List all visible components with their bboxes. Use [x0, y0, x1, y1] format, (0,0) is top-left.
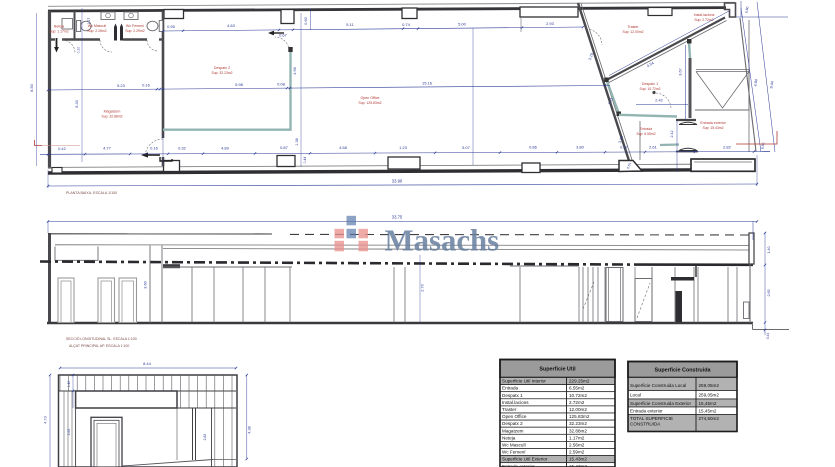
svg-text:Magatzem: Magatzem [104, 110, 121, 114]
svg-text:Superficie Util Exterior: Superficie Util Exterior [502, 457, 548, 462]
svg-text:Open Office: Open Office [502, 414, 527, 419]
svg-text:0.44: 0.44 [303, 157, 307, 164]
svg-text:2.70: 2.70 [421, 284, 425, 291]
svg-text:2.61: 2.61 [649, 145, 658, 150]
svg-text:0.08: 0.08 [277, 82, 286, 87]
svg-text:0.74: 0.74 [402, 22, 411, 27]
svg-text:Open Office: Open Office [360, 96, 379, 100]
svg-text:Masachs: Masachs [385, 223, 500, 257]
svg-text:2.93: 2.93 [546, 21, 555, 26]
svg-text:Traster: Traster [627, 25, 639, 29]
svg-text:Wc Femení: Wc Femení [502, 450, 526, 455]
svg-text:259,05m2: 259,05m2 [699, 393, 720, 398]
svg-text:0.32: 0.32 [178, 145, 187, 150]
svg-text:0.87: 0.87 [280, 145, 289, 150]
svg-text:5.11: 5.11 [346, 22, 354, 27]
svg-text:33.75: 33.75 [392, 215, 403, 220]
svg-text:4.38: 4.38 [248, 426, 252, 433]
svg-text:Sup: 2.28m2: Sup: 2.28m2 [87, 29, 106, 33]
svg-text:5.23: 5.23 [117, 83, 126, 88]
svg-text:0.87: 0.87 [620, 145, 629, 150]
svg-text:15.43m2: 15.43m2 [569, 457, 587, 462]
svg-text:2.82: 2.82 [203, 434, 207, 441]
svg-text:3.67: 3.67 [679, 68, 683, 75]
svg-text:0.44: 0.44 [766, 333, 770, 340]
svg-text:0.80: 0.80 [761, 142, 766, 149]
svg-text:TOTAL SUPERFICIE: TOTAL SUPERFICIE [630, 416, 673, 421]
svg-text:Neteja: Neteja [502, 435, 516, 440]
svg-text:1.23: 1.23 [399, 145, 408, 150]
svg-text:15,45m2: 15,45m2 [699, 401, 717, 406]
svg-text:Sup: 32.88m2: Sup: 32.88m2 [101, 115, 122, 119]
svg-text:6.33: 6.33 [75, 100, 79, 107]
svg-text:Sup: 15.43m2: Sup: 15.43m2 [702, 126, 723, 130]
svg-text:Superficie Construida Local: Superficie Construida Local [630, 383, 686, 388]
svg-text:274,50m2: 274,50m2 [699, 416, 720, 421]
svg-text:32.23m2: 32.23m2 [569, 421, 587, 426]
svg-text:4.94: 4.94 [754, 79, 759, 87]
svg-text:0.16: 0.16 [142, 83, 151, 88]
svg-text:2.59m2: 2.59m2 [569, 450, 585, 455]
svg-text:1.40: 1.40 [67, 381, 71, 388]
svg-text:9.44: 9.44 [770, 81, 775, 89]
svg-text:0.42: 0.42 [58, 146, 67, 151]
svg-text:10.72m2: 10.72m2 [569, 393, 587, 398]
svg-text:Local: Local [630, 393, 641, 398]
svg-text:2.56m2: 2.56m2 [569, 443, 585, 448]
svg-text:Superficie Util Interior: Superficie Util Interior [502, 379, 546, 384]
svg-text:Neteja: Neteja [54, 25, 64, 29]
svg-text:Entrada exterior: Entrada exterior [630, 408, 663, 413]
svg-text:Entrada: Entrada [502, 386, 519, 391]
svg-text:0.95: 0.95 [167, 24, 176, 29]
svg-text:Sup: 125.83m2: Sup: 125.83m2 [359, 101, 382, 105]
svg-text:Traster: Traster [502, 407, 517, 412]
svg-text:2.82: 2.82 [723, 145, 732, 150]
svg-text:5.07: 5.07 [462, 145, 471, 150]
svg-text:1.17m2: 1.17m2 [569, 435, 585, 440]
svg-text:0.67: 0.67 [279, 33, 288, 38]
svg-text:0.10: 0.10 [77, 47, 81, 54]
svg-text:1.40: 1.40 [767, 247, 771, 254]
svg-text:8.44: 8.44 [143, 361, 152, 366]
svg-text:Sup: 1.17m2: Sup: 1.17m2 [49, 30, 68, 34]
svg-text:Despatx 1: Despatx 1 [502, 393, 523, 398]
svg-text:0.16: 0.16 [150, 146, 159, 151]
svg-text:Instal.lacions: Instal.lacions [502, 400, 529, 405]
svg-text:2.42: 2.42 [655, 99, 662, 103]
svg-text:4.89: 4.89 [221, 145, 230, 150]
svg-text:15.16: 15.16 [422, 80, 433, 85]
svg-text:8.50: 8.50 [30, 84, 34, 91]
svg-text:3.19: 3.19 [588, 53, 594, 61]
svg-text:1.27: 1.27 [87, 18, 91, 25]
svg-text:Despatx 1: Despatx 1 [642, 82, 658, 86]
svg-text:Wc Masculí: Wc Masculí [502, 443, 526, 448]
svg-text:2.65: 2.65 [767, 290, 771, 297]
svg-text:259,05m2: 259,05m2 [699, 383, 720, 388]
svg-text:Magatzem: Magatzem [502, 428, 524, 433]
svg-text:Sup: 10.72m2: Sup: 10.72m2 [639, 87, 660, 91]
svg-text:125.83m2: 125.83m2 [569, 414, 590, 419]
svg-text:Superficie Util: Superficie Util [539, 367, 576, 373]
svg-text:Superficie Construida Exterior: Superficie Construida Exterior [630, 401, 691, 406]
svg-text:4.96: 4.96 [293, 67, 297, 74]
svg-text:CONSTRUIDA: CONSTRUIDA [630, 422, 661, 427]
svg-text:2.72m2: 2.72m2 [569, 400, 585, 405]
svg-text:2.65: 2.65 [67, 429, 71, 436]
svg-text:0.86: 0.86 [529, 145, 538, 150]
svg-text:1.38: 1.38 [295, 138, 299, 145]
svg-text:5.00: 5.00 [458, 21, 467, 26]
svg-text:Entrada: Entrada [640, 127, 653, 131]
svg-text:Despatx 2: Despatx 2 [502, 421, 523, 426]
svg-text:Entrada exterior: Entrada exterior [700, 121, 726, 125]
svg-text:32.88m2: 32.88m2 [569, 428, 587, 433]
svg-text:33.90: 33.90 [392, 179, 403, 184]
svg-text:Sup: 12.00m2: Sup: 12.00m2 [622, 30, 643, 34]
svg-text:3.80: 3.80 [576, 145, 585, 150]
svg-text:4.63: 4.63 [227, 23, 236, 28]
svg-text:SECCIÓ LONGITUDINAL SL. ESCALA: SECCIÓ LONGITUDINAL SL. ESCALA 1:100 [66, 336, 137, 341]
svg-text:Superficie Construida: Superficie Construida [654, 368, 711, 374]
svg-text:229.25m2: 229.25m2 [569, 379, 590, 384]
svg-text:0.60: 0.60 [304, 17, 308, 24]
svg-text:Sup: 2.72m2: Sup: 2.72m2 [694, 18, 713, 22]
svg-text:3.60: 3.60 [144, 281, 148, 288]
svg-text:15,45m2: 15,45m2 [699, 408, 717, 413]
svg-text:ALÇAT PRINCIPAL AP. ESCALA 1:1: ALÇAT PRINCIPAL AP. ESCALA 1:100 [69, 344, 129, 348]
svg-text:Wc Femení: Wc Femení [126, 24, 144, 28]
svg-text:4.58: 4.58 [339, 145, 348, 150]
svg-text:Sup: 2.29m2: Sup: 2.29m2 [125, 29, 144, 33]
svg-text:PLANTA BAIXA. ESCALA 1/100: PLANTA BAIXA. ESCALA 1/100 [66, 191, 117, 195]
svg-text:Instal.lacions: Instal.lacions [694, 13, 715, 17]
svg-text:12.00m2: 12.00m2 [569, 407, 587, 412]
svg-text:Sup: 6.55m2: Sup: 6.55m2 [636, 132, 655, 136]
svg-text:2.42: 2.42 [670, 131, 674, 138]
svg-text:5.98: 5.98 [235, 82, 244, 87]
svg-text:Despatx 2: Despatx 2 [214, 66, 230, 70]
svg-text:4.77: 4.77 [103, 146, 112, 151]
svg-text:0.80: 0.80 [745, 6, 750, 13]
svg-text:4.73: 4.73 [44, 416, 48, 423]
svg-text:Sup: 32.23m2: Sup: 32.23m2 [211, 71, 232, 75]
svg-text:6.55m2: 6.55m2 [569, 386, 585, 391]
